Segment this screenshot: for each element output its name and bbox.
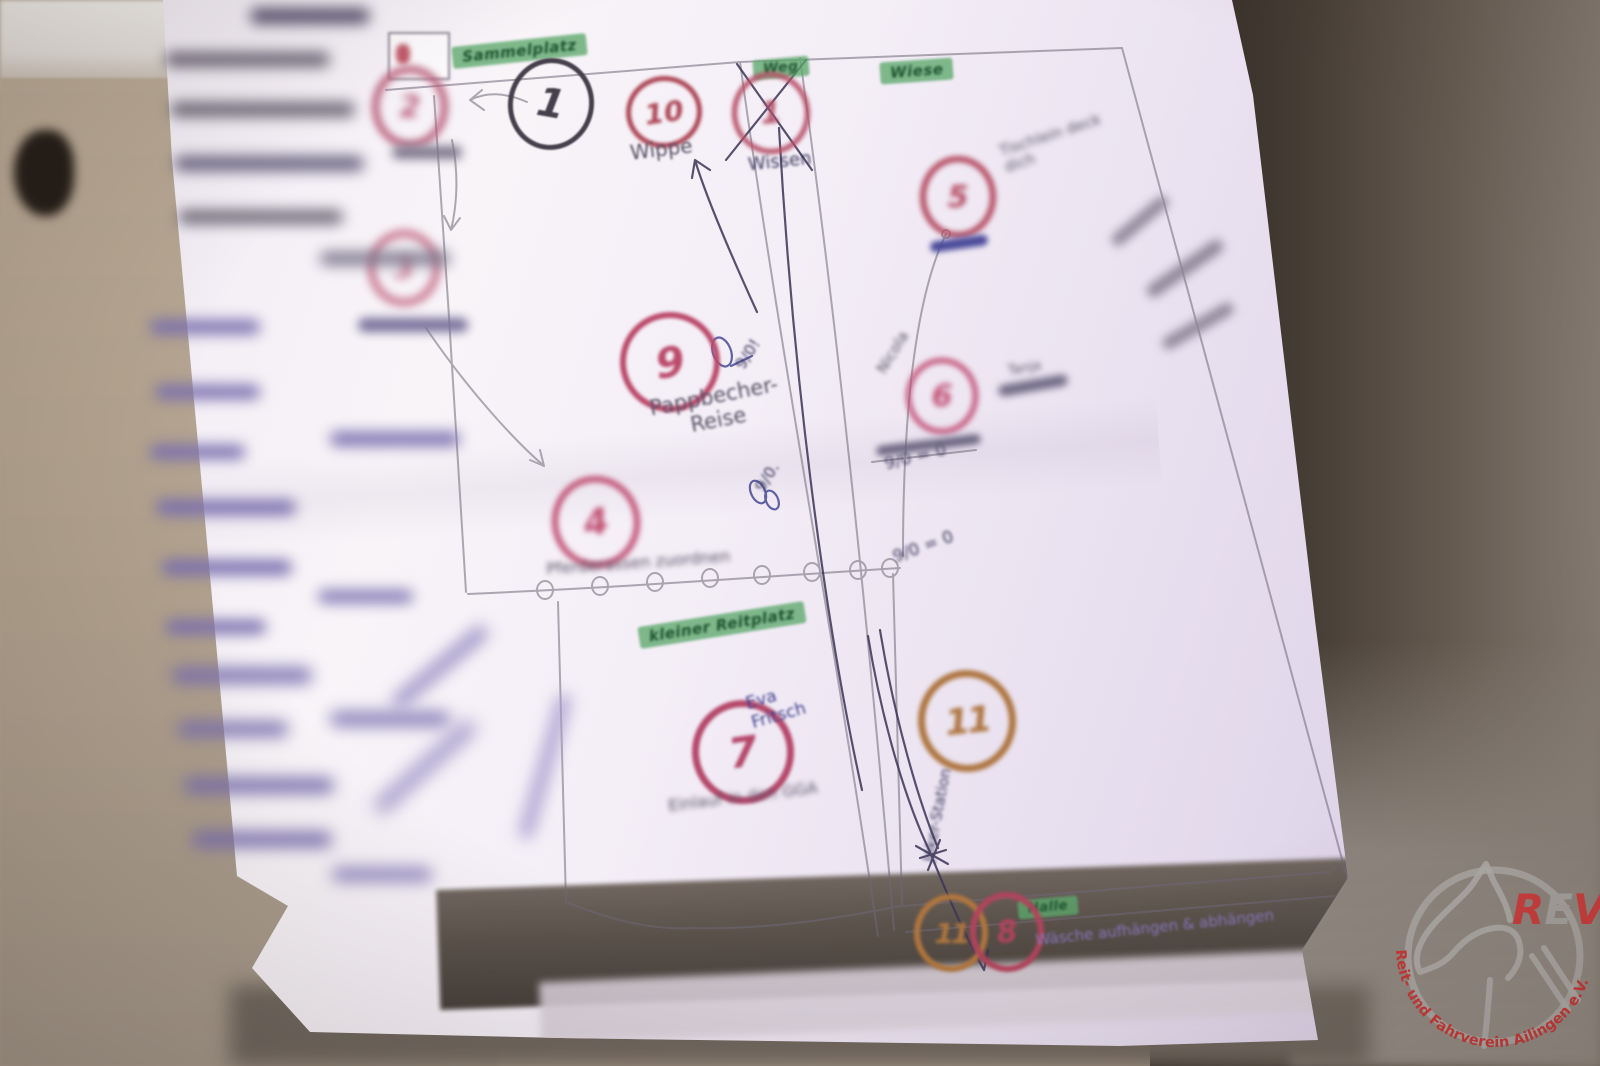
station-3-circle: 3 xyxy=(368,230,440,306)
station-2-circle: 2 xyxy=(372,66,448,148)
station-6-circle: 6 xyxy=(906,358,978,434)
station-11-joker-number: 11 xyxy=(943,698,991,743)
station-7-number: 7 xyxy=(725,726,761,779)
station-11-halle-number: 11 xyxy=(935,917,968,950)
handwriting-smudge xyxy=(156,500,296,515)
handwriting-smudge xyxy=(162,560,292,575)
handwriting-smudge xyxy=(192,832,332,847)
station-2-number: 2 xyxy=(400,90,421,125)
handwriting-smudge xyxy=(184,778,334,793)
station-6-number: 6 xyxy=(932,379,953,414)
station-1-number: 1 xyxy=(533,79,568,129)
watermark-letter-r: R xyxy=(1512,885,1544,934)
watermark-letter-v: V xyxy=(1573,885,1600,934)
station-8-number: 8 xyxy=(995,914,1019,951)
station-5-number: 5 xyxy=(948,180,969,215)
handwriting-smudge xyxy=(150,445,245,459)
watermark-initials: REV xyxy=(1512,885,1600,934)
handwriting-smudge xyxy=(330,432,460,446)
watermark-letter-e: E xyxy=(1544,885,1573,934)
handwriting-smudge xyxy=(318,590,413,603)
station-5-circle: 5 xyxy=(920,156,996,238)
photo-of-handdrawn-course-map: Sammelplatz Weg Wiese kleiner Reitplatz … xyxy=(0,0,1600,1066)
station-3-label-smudge xyxy=(358,318,468,332)
handwriting-smudge xyxy=(165,52,330,67)
station-2-label-smudge xyxy=(392,146,462,159)
station-4-number: 4 xyxy=(580,500,612,545)
station-9-number: 9 xyxy=(652,336,688,389)
handwriting-smudge xyxy=(178,722,288,736)
handwriting-smudge xyxy=(150,320,260,334)
handwriting-smudge xyxy=(320,252,450,265)
handwriting-smudge xyxy=(330,712,450,726)
handwriting-smudge xyxy=(332,868,432,881)
handwriting-smudge xyxy=(174,156,364,171)
legend-red-mark xyxy=(396,44,410,64)
handwriting-smudge xyxy=(178,210,343,224)
station-10-number: 10 xyxy=(642,93,685,131)
handwriting-smudge xyxy=(250,8,370,24)
handwriting-smudge xyxy=(170,102,355,117)
handwriting-smudge xyxy=(155,385,260,399)
handwriting-smudge xyxy=(166,620,266,634)
club-watermark-logo: REV Reit- und Fahrverein Ailingen e.V. xyxy=(1382,860,1600,1066)
handwriting-smudge xyxy=(172,668,312,683)
station-1-crossed-number: 1 xyxy=(759,95,783,132)
